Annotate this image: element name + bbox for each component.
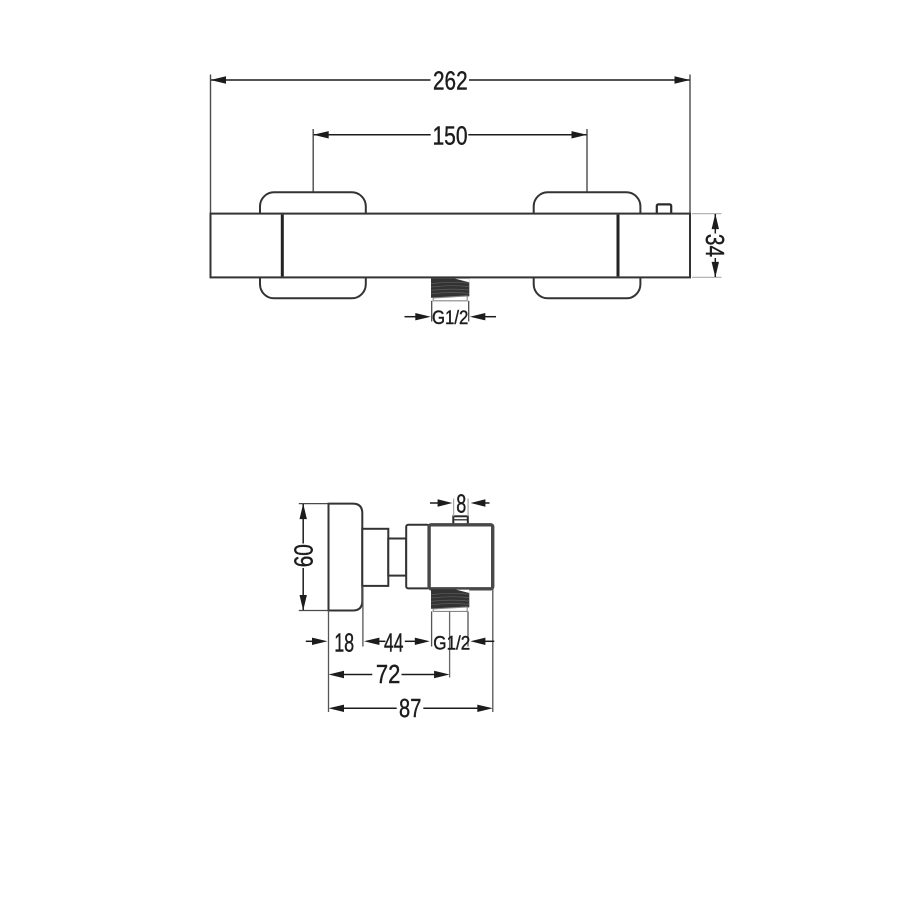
svg-text:262: 262 <box>433 67 468 95</box>
svg-text:72: 72 <box>376 661 401 689</box>
svg-text:34: 34 <box>700 234 728 257</box>
svg-text:87: 87 <box>399 695 421 723</box>
svg-text:8: 8 <box>456 490 466 518</box>
svg-text:60: 60 <box>291 544 319 567</box>
svg-text:18: 18 <box>334 630 354 658</box>
svg-text:G1/2: G1/2 <box>433 633 470 654</box>
svg-text:150: 150 <box>433 123 468 151</box>
svg-text:44: 44 <box>384 630 404 658</box>
svg-text:G1/2: G1/2 <box>432 308 468 329</box>
